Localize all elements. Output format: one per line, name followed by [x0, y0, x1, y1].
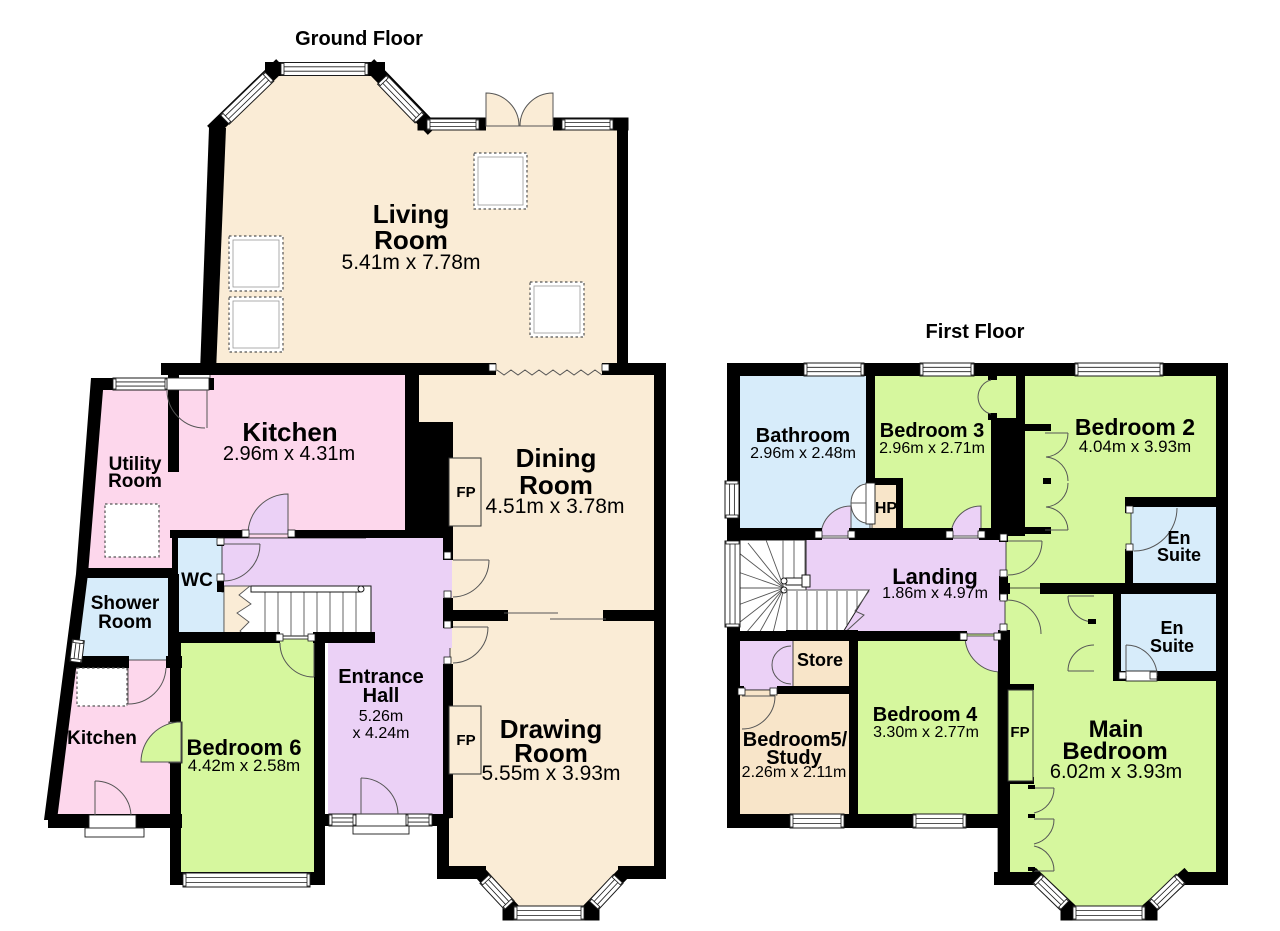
svg-text:2.96m x 2.48m: 2.96m x 2.48m [750, 445, 856, 462]
svg-text:WC: WC [181, 570, 213, 591]
svg-text:FP: FP [456, 484, 475, 501]
svg-text:6.02m x 3.93m: 6.02m x 3.93m [1050, 761, 1182, 783]
svg-text:Kitchen: Kitchen [67, 728, 137, 749]
svg-text:Bathroom: Bathroom [756, 425, 850, 447]
svg-text:Shower: Shower [91, 593, 160, 614]
svg-text:4.04m x 3.93m: 4.04m x 3.93m [1079, 437, 1191, 456]
svg-text:Ground Floor: Ground Floor [295, 28, 423, 50]
svg-text:5.41m x 7.78m: 5.41m x 7.78m [342, 251, 481, 274]
svg-text:1.86m x 4.97m: 1.86m x 4.97m [882, 585, 988, 602]
svg-text:2.96m x 2.71m: 2.96m x 2.71m [879, 440, 985, 457]
svg-text:5.55m x 3.93m: 5.55m x 3.93m [482, 762, 621, 785]
svg-text:2.96m x 4.31m: 2.96m x 4.31m [223, 443, 355, 465]
svg-text:2.26m x 2.11m: 2.26m x 2.11m [742, 764, 847, 781]
svg-text:Suite: Suite [1150, 636, 1194, 656]
svg-text:First Floor: First Floor [926, 321, 1025, 343]
svg-text:3.30m x 2.77m: 3.30m x 2.77m [873, 724, 979, 741]
svg-text:FP: FP [456, 732, 475, 749]
svg-text:FP: FP [1010, 724, 1029, 741]
svg-text:Store: Store [797, 650, 843, 670]
svg-text:4.42m x 2.58m: 4.42m x 2.58m [188, 756, 300, 775]
svg-text:4.51m x 3.78m: 4.51m x 3.78m [486, 495, 625, 518]
svg-text:En: En [1160, 618, 1183, 638]
svg-text:HP: HP [875, 500, 898, 517]
svg-text:Bedroom 3: Bedroom 3 [880, 420, 984, 442]
svg-text:Suite: Suite [1157, 545, 1201, 565]
svg-text:Hall: Hall [363, 685, 400, 707]
svg-text:Room: Room [108, 471, 162, 492]
svg-text:5.26m: 5.26m [359, 708, 403, 725]
svg-text:Dining: Dining [516, 443, 597, 473]
svg-text:Room: Room [98, 612, 152, 633]
svg-text:x 4.24m: x 4.24m [353, 725, 410, 742]
svg-text:Bedroom 4: Bedroom 4 [873, 704, 978, 726]
